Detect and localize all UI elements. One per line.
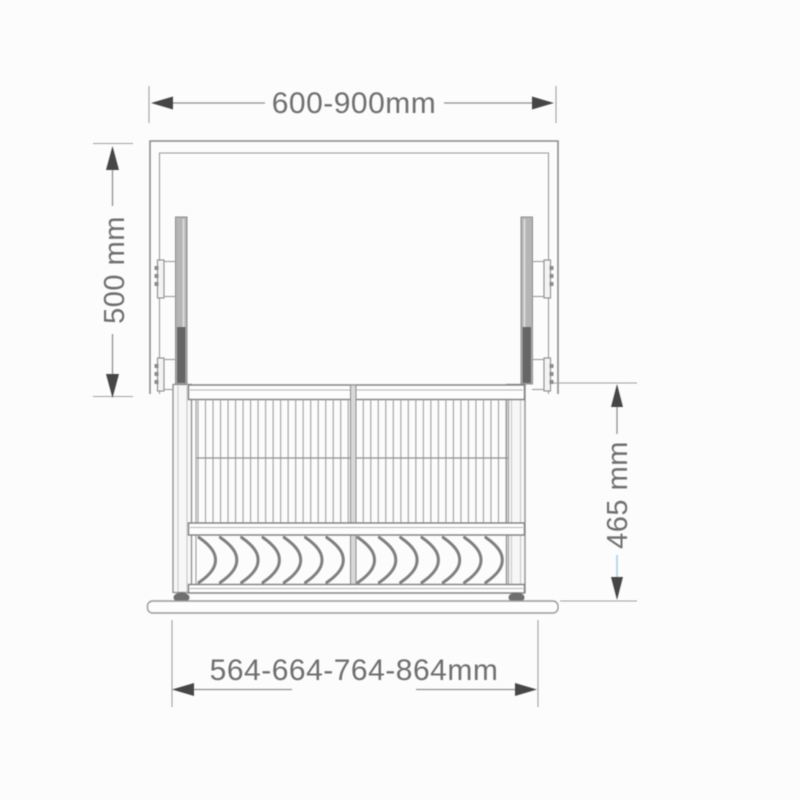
- arrow-left-icon: [172, 683, 194, 696]
- cabinet-outer-wall: [150, 141, 558, 394]
- slide-rail-left: [176, 217, 188, 384]
- bracket-tooth: [550, 274, 554, 278]
- arrow-up-icon: [106, 146, 119, 170]
- bracket-tooth: [155, 380, 159, 384]
- plate-slot-chevron: [401, 538, 418, 583]
- drip-tray-base: [148, 601, 559, 613]
- bracket-tooth: [550, 380, 554, 384]
- plate-slot-chevron: [358, 538, 375, 583]
- bracket-tooth: [155, 372, 159, 376]
- rack-middle-rail: [189, 523, 525, 535]
- bracket-plate: [544, 260, 551, 298]
- dimension-rack-width: 564-664-764-864mm: [172, 620, 538, 707]
- plate-slot-chevron: [220, 538, 237, 583]
- dimension-label-rack-height: 465 mm: [602, 441, 634, 549]
- plate-slot-chevron: [263, 538, 280, 583]
- cabinet-outline: [150, 141, 558, 394]
- cabinet-inner-wall: [160, 153, 549, 394]
- rack-post-right: [507, 385, 526, 593]
- rail-inner-slide: [523, 327, 532, 383]
- dimension-label-cabinet-height: 500 mm: [99, 216, 131, 324]
- plate-slot-chevron: [379, 538, 396, 583]
- bracket-tooth: [550, 372, 554, 376]
- dimension-label-cabinet-width: 600-900mm: [272, 87, 437, 120]
- bracket-tooth: [155, 282, 159, 286]
- bracket-tooth: [155, 266, 159, 270]
- rail-inner-slide: [177, 327, 186, 383]
- bracket-tooth: [550, 364, 554, 368]
- arrow-left-icon: [151, 97, 173, 110]
- arrow-right-icon: [532, 97, 554, 110]
- arrow-down-icon: [611, 577, 623, 600]
- plate-slot-chevron: [242, 538, 259, 583]
- bracket-tooth: [155, 274, 159, 278]
- arrow-up-icon: [611, 384, 623, 407]
- bracket-tooth: [155, 364, 159, 368]
- dimension-cabinet-height: 500 mm: [93, 144, 133, 399]
- arrow-down-icon: [106, 374, 119, 398]
- plate-slot-chevron: [443, 538, 460, 583]
- plate-slot-chevron: [327, 538, 344, 583]
- rack-post-left: [173, 385, 192, 593]
- mounting-bracket-right-lower: [532, 358, 554, 391]
- dimension-cabinet-width: 600-900mm: [149, 86, 556, 123]
- dimension-rack-height: 465 mm: [545, 383, 637, 601]
- plate-slot-chevron: [284, 538, 301, 583]
- bracket-tooth: [550, 266, 554, 270]
- dimension-label-rack-width: 564-664-764-864mm: [210, 654, 499, 687]
- plate-slot-chevron: [306, 538, 323, 583]
- plate-slot-chevron: [422, 538, 439, 583]
- dish-rack: [173, 385, 525, 603]
- mounting-bracket-left-upper: [155, 260, 177, 298]
- rack-center-divider: [351, 385, 357, 592]
- plate-slot-chevron: [465, 538, 482, 583]
- slide-rail-right: [521, 217, 533, 384]
- plate-slot-chevron: [486, 538, 503, 583]
- bracket-tooth: [550, 282, 554, 286]
- mounting-bracket-right-upper: [532, 260, 554, 298]
- bracket-plate: [158, 260, 165, 298]
- arrow-right-icon: [515, 683, 537, 696]
- diagram-canvas: 600-900mm 500 mm 465 mm: [0, 0, 800, 800]
- plate-slot-chevron: [199, 538, 216, 583]
